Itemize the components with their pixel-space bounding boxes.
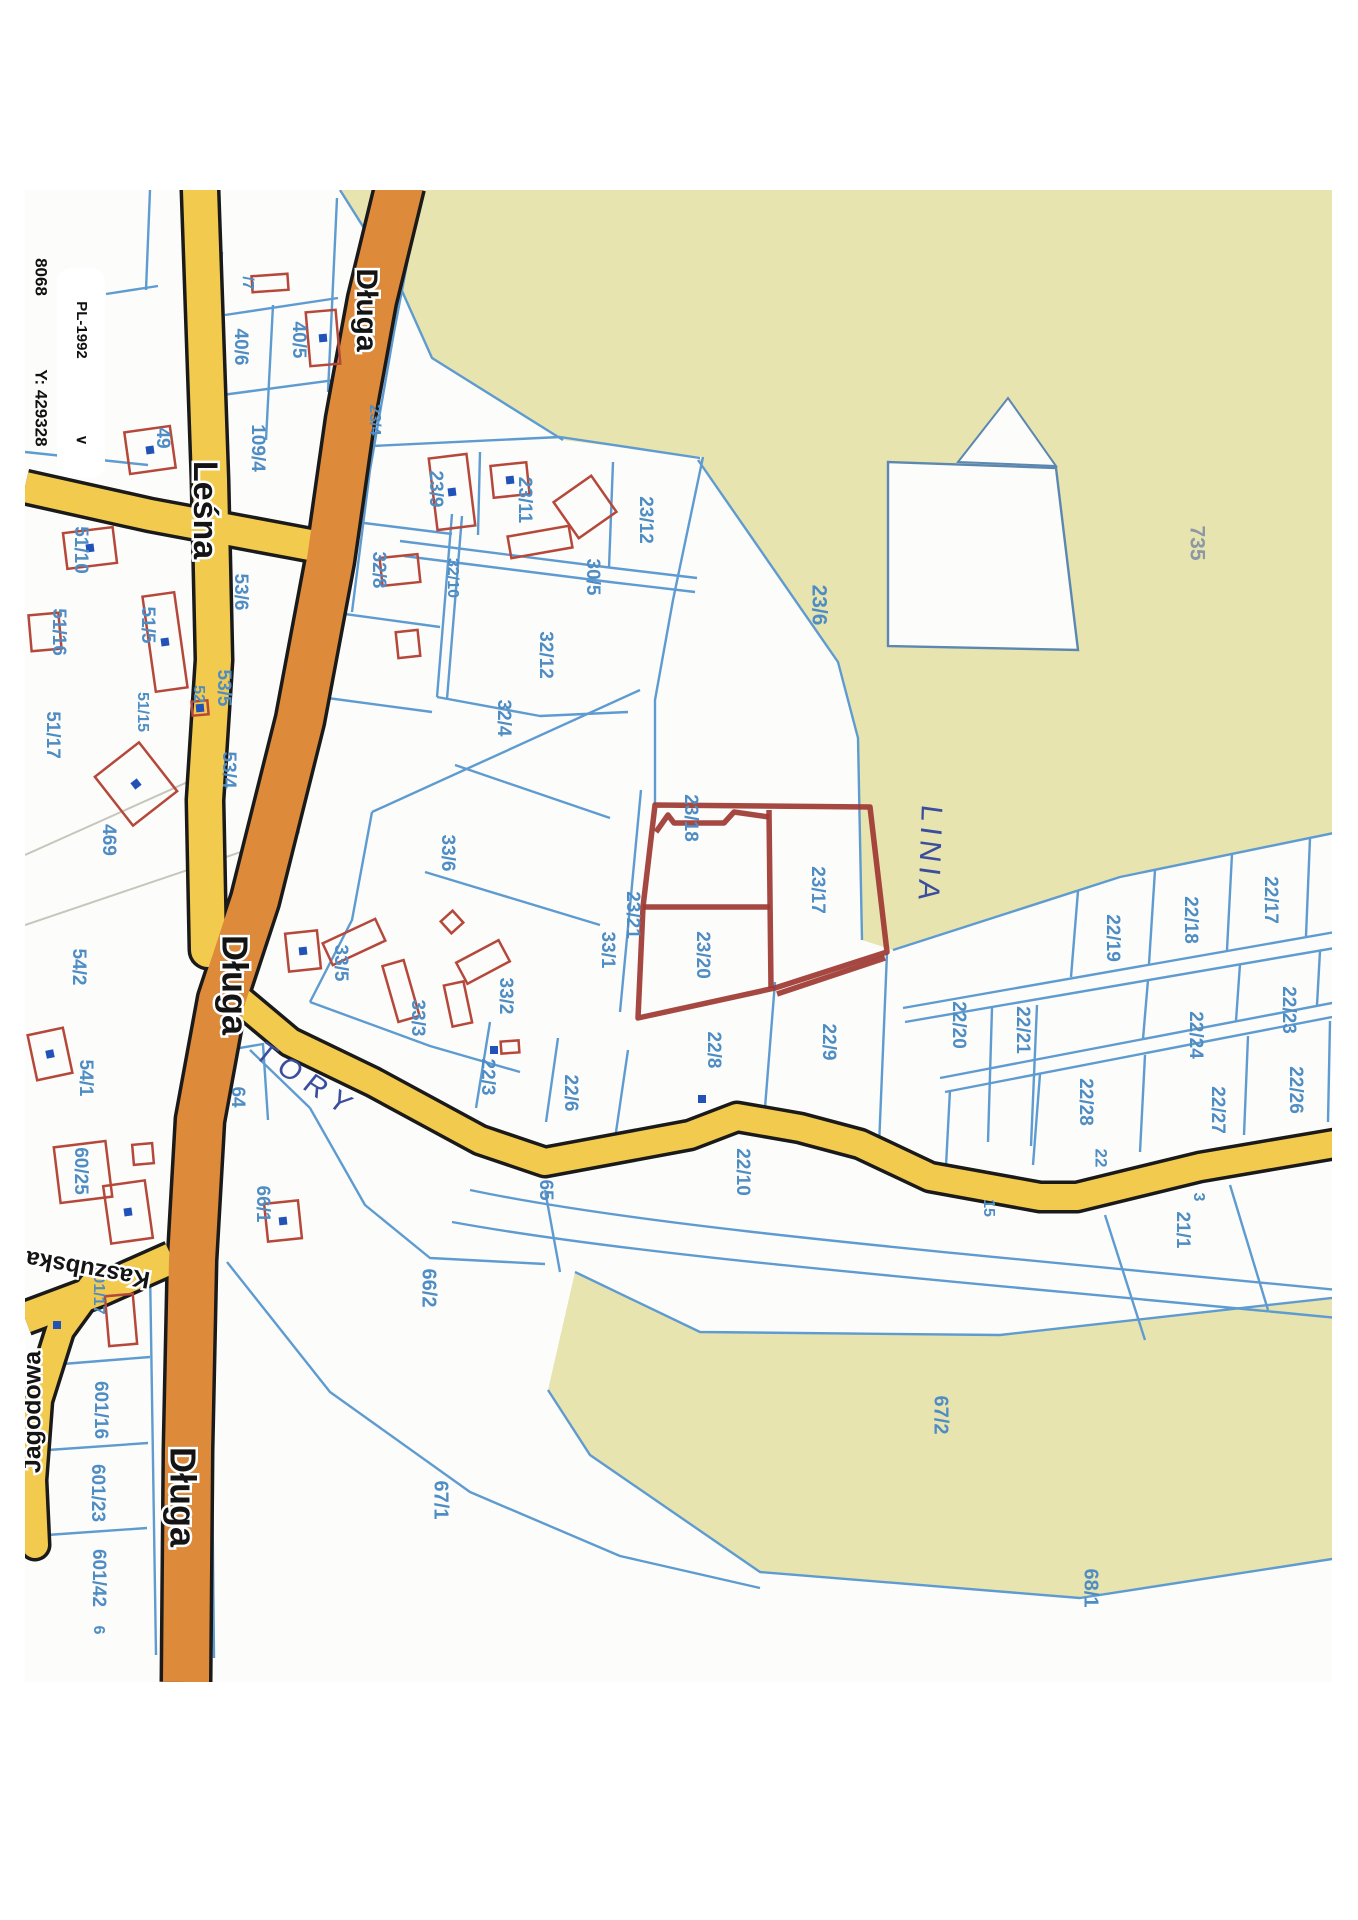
parcel-number-label: 49 [152, 427, 173, 448]
parcel-number-label: 22/27 [1207, 1086, 1228, 1134]
parcel-number-label: 53/4 [218, 752, 239, 789]
parcel-number-label: 67/1 [430, 1481, 452, 1520]
parcel-number-label: 64 [227, 1086, 248, 1108]
parcel-number-label: 22/17 [1260, 876, 1281, 924]
parcel-number-label: 23/6 [807, 585, 830, 626]
parcel-number-label: 22/8 [703, 1032, 724, 1069]
parcel-number-label: 22/9 [818, 1024, 839, 1061]
parcel-number-label: 3 [1190, 1193, 1207, 1202]
address-dot [448, 488, 457, 497]
address-dot [299, 947, 308, 956]
parcel-number-label: 22/23 [1278, 986, 1299, 1034]
parcel-number-label: 65 [535, 1179, 556, 1201]
parcel-number-label: 32/12 [535, 631, 556, 679]
address-dot [490, 1046, 498, 1054]
address-dot [160, 637, 169, 646]
road-name-label: Długa [214, 935, 255, 1036]
parcel-number-label: 40/6 [230, 329, 251, 366]
address-dot [698, 1095, 706, 1103]
parcel-number-label: 33/3 [407, 1000, 428, 1037]
parcel-number-label: 22/21 [1012, 1006, 1033, 1054]
parcel-number-label: 67/2 [930, 1396, 952, 1435]
parcel-number-label: 23/4 [366, 404, 383, 435]
parcel-number-label: 33/6 [437, 835, 458, 872]
parcel-number-label: 40/5 [288, 322, 309, 359]
parcel-number-label: 32/8 [368, 552, 389, 589]
parcel-number-label: 22/20 [948, 1001, 969, 1049]
parcel-number-label: 54/1 [75, 1060, 96, 1097]
cadastral-map: /740/540/6109/44923/923/1123/1230/523/43… [0, 0, 1358, 1920]
address-dot [279, 1217, 288, 1226]
parcel-number-label: 33/5 [330, 945, 351, 982]
parcel-number-label: 51/15 [134, 692, 151, 732]
parcel-number-label: 22/3 [477, 1059, 498, 1096]
parcel-number-label: 22/24 [1185, 1011, 1206, 1059]
parcel-number-label: 601/23 [87, 1464, 108, 1522]
road-name-label: Długa [162, 1447, 203, 1548]
parcel-number-label: 23/11 [514, 477, 535, 524]
crs-pill [57, 268, 105, 478]
parcel-number-label: 22/18 [1180, 896, 1201, 944]
parcel-number-label: 53/6 [230, 574, 251, 611]
parcel-number-label: 23/20 [692, 931, 713, 979]
parcel-number-label: /7 [239, 276, 256, 289]
parcel-number-label: 22/28 [1075, 1078, 1096, 1126]
parcel-number-label: 22/26 [1285, 1066, 1306, 1114]
parcel-number-label: 52 [190, 685, 207, 703]
parcel-number-label: 109/4 [247, 424, 268, 472]
parcel-number-label: 23/21 [622, 891, 643, 939]
road-name-label: Długa [350, 268, 383, 352]
parcel-number-label: 23/12 [635, 496, 656, 544]
parcel-number-label: 21/1 [1172, 1212, 1193, 1249]
address-dot [506, 476, 515, 485]
address-dot [45, 1049, 54, 1058]
coordinate-x-readout: 8068 [32, 258, 51, 296]
handwritten-annotation: LINIA [911, 803, 947, 908]
parcel-number-label: 51/16 [48, 608, 69, 656]
parcel-number-label: 6 [90, 1626, 107, 1635]
parcel-number-label: 22/10 [732, 1148, 753, 1196]
parcel-number-label: 22/19 [1102, 914, 1123, 962]
parcel-number-label: 68/1 [1080, 1569, 1102, 1608]
parcel-number-label: 23/9 [425, 471, 446, 508]
road-name-label: Leśna [186, 461, 224, 560]
white-parcel-notch [888, 462, 1078, 650]
parcel-number-label: 30/5 [582, 559, 603, 596]
parcel-number-label: 51/5 [137, 607, 158, 644]
road-lesna [200, 190, 214, 950]
parcel-number-label: 33/1 [597, 932, 618, 969]
address-dot [53, 1321, 61, 1329]
parcel-number-label: 32/10 [444, 558, 461, 598]
map-content: /740/540/6109/44923/923/1123/1230/523/43… [19, 185, 1358, 1682]
parcel-number-label: 32/4 [493, 700, 514, 737]
parcel-number-label: 53/5 [213, 670, 234, 707]
parcel-number-label: 469 [98, 824, 119, 856]
crs-selector-label[interactable]: PL-1992 [73, 301, 90, 359]
parcel-number-label: 23/17 [807, 866, 828, 914]
parcel-number-label: 22 [1092, 1149, 1111, 1168]
parcel-number-label: 601/16 [90, 1381, 111, 1439]
parcel-number-label: 33/2 [495, 978, 516, 1015]
parcel-number-label: 54/2 [68, 949, 89, 986]
coordinate-y-readout: Y: 429328 [32, 369, 51, 446]
parcel-number-label: 66/2 [418, 1269, 440, 1308]
address-dot [319, 334, 328, 343]
parcel-number-label: 22/6 [560, 1075, 581, 1112]
parcel-number-label: 51/17 [42, 711, 63, 759]
chevron-down-icon[interactable]: ∨ [73, 435, 90, 446]
scanned-map-page: /740/540/6109/44923/923/1123/1230/523/43… [0, 0, 1358, 1920]
parcel-number-label: 51/10 [70, 526, 91, 574]
parcel-number-label: 601/42 [88, 1549, 109, 1607]
red-marker-outline [769, 810, 771, 988]
address-dot [196, 704, 205, 713]
parcel-number-label: 60/25 [70, 1147, 91, 1195]
parcel-number-label: 66/1 [252, 1186, 273, 1223]
parcel-number-label: 15 [980, 1199, 997, 1217]
parcel-number-label: 23/18 [680, 794, 701, 842]
parcel-number-label: 735 [1185, 525, 1208, 560]
address-dot [123, 1207, 132, 1216]
